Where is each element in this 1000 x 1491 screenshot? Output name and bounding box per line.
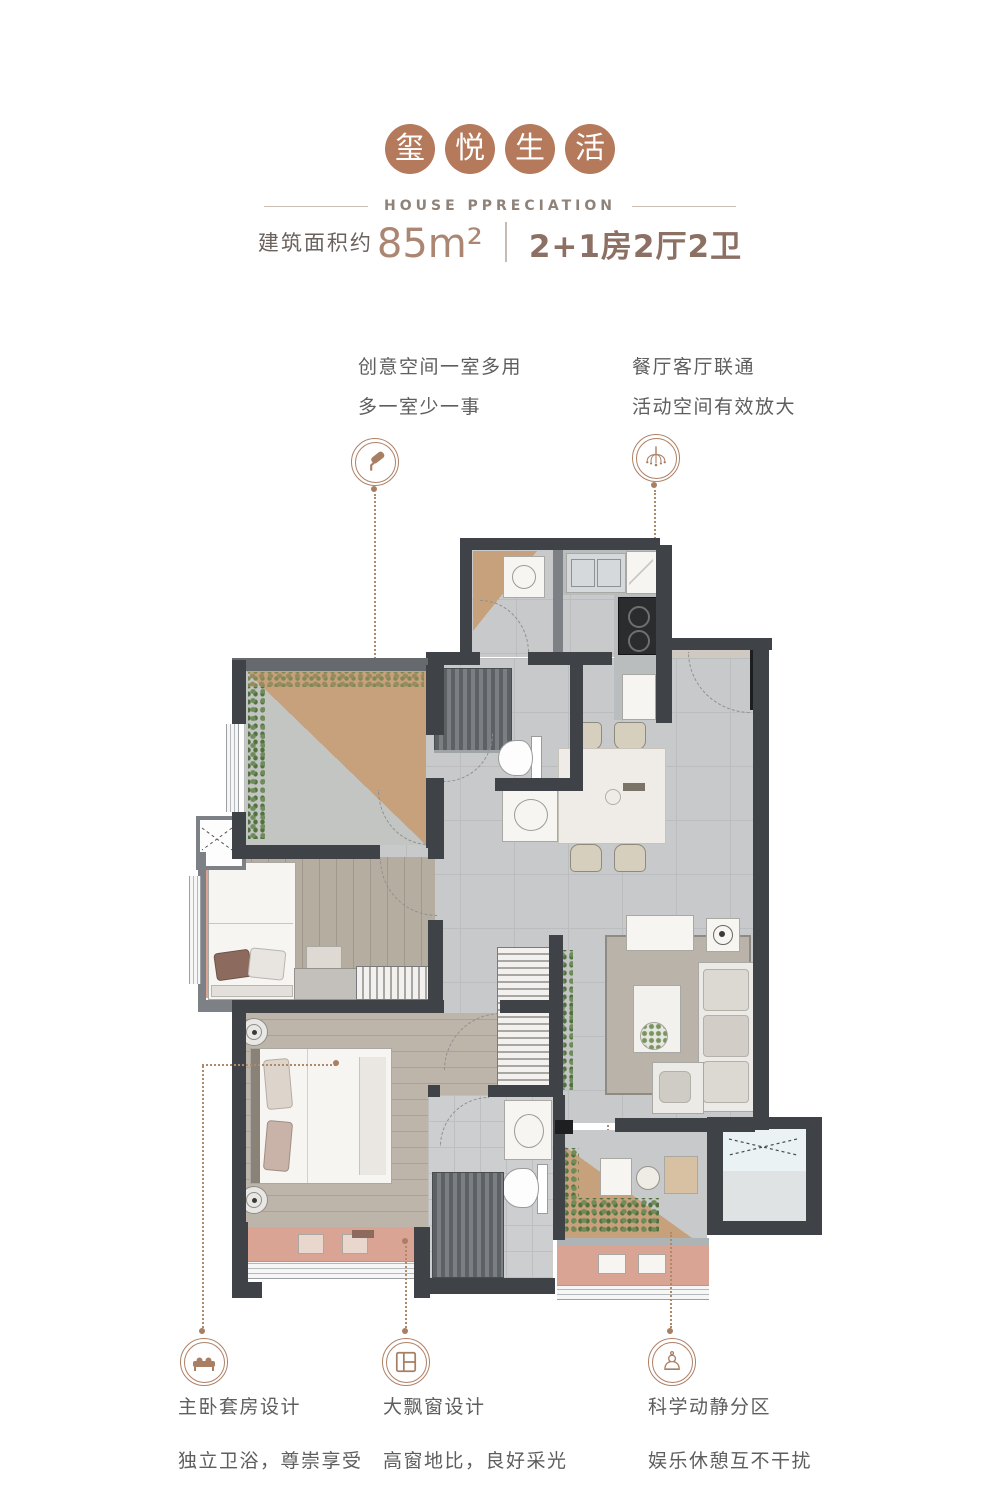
bedroom2-wardrobe — [356, 966, 436, 1000]
callout-flex-line1: 创意空间一室多用 — [358, 352, 522, 379]
chess-pawn-icon: ♙ — [648, 1338, 696, 1386]
seat-cushion — [598, 1254, 626, 1274]
window-glyph — [393, 1349, 419, 1375]
title-char: 悦 — [455, 134, 485, 164]
kitchen-cabinet — [622, 674, 656, 720]
callout-zoning-line2: 娱乐休憩互不干扰 — [648, 1446, 812, 1473]
title-char: 玺 — [395, 134, 425, 164]
washing-machine — [503, 556, 545, 598]
callout-flex-line2: 多一室少一事 — [358, 392, 481, 419]
callout-dining-line2: 活动空间有效放大 — [632, 392, 796, 419]
wall — [232, 660, 246, 724]
flex-room-plants-top — [248, 672, 424, 687]
lower-window-seat — [557, 1245, 709, 1285]
bed-glyph — [191, 1350, 217, 1374]
wall — [488, 1085, 553, 1097]
chess-pawn-glyph: ♙ — [660, 1349, 683, 1375]
fridge — [626, 551, 657, 594]
callout-dining-line1: 餐厅客厅联通 — [632, 352, 755, 379]
connector-line-bed-h — [202, 1064, 336, 1066]
dining-chair — [614, 722, 646, 750]
master-shower — [432, 1172, 504, 1278]
connector-dot — [199, 1328, 205, 1334]
wall — [428, 845, 444, 859]
window-icon — [382, 1338, 430, 1386]
master-bay-glass — [248, 1261, 414, 1279]
dining-chair — [614, 844, 646, 872]
wall — [615, 1118, 755, 1132]
title-char: 活 — [575, 134, 605, 164]
wall — [500, 1000, 550, 1013]
page-title: 玺 悦 生 活 — [0, 124, 1000, 174]
flex-window — [226, 724, 239, 812]
wall — [495, 778, 583, 791]
area-info: 建筑面积约 85m² 2+1房2厅2卫 — [0, 222, 1000, 264]
paint-roller-icon — [351, 438, 399, 486]
master-toilet — [502, 1164, 548, 1212]
balcony-table — [636, 1166, 660, 1190]
paint-roller-glyph — [362, 449, 388, 475]
balcony-chair — [664, 1156, 698, 1194]
wall — [426, 652, 480, 665]
connector-line-window — [405, 1246, 407, 1328]
wall — [672, 638, 772, 650]
decor-speaker — [706, 918, 740, 952]
bay-cushion — [298, 1234, 324, 1254]
wall — [232, 1000, 444, 1013]
wall — [707, 1123, 723, 1235]
subtitle: HOUSE PPRECIATION — [384, 198, 616, 214]
lower-window-glass — [557, 1285, 709, 1300]
wall — [460, 550, 472, 654]
flex-room-plants-left — [248, 687, 265, 839]
bedroom2-window — [189, 876, 201, 984]
connector-dot — [402, 1238, 408, 1244]
stove — [618, 597, 658, 655]
wall — [549, 935, 563, 1095]
connector-line-bed-v — [202, 1066, 204, 1328]
wall — [428, 1085, 440, 1097]
bed-icon — [180, 1338, 228, 1386]
dining-chair — [570, 844, 602, 872]
wall — [428, 920, 443, 1004]
divider-line — [264, 206, 368, 207]
connector-dot — [371, 486, 377, 492]
wall — [232, 1013, 246, 1227]
area-label: 建筑面积约 — [258, 227, 373, 264]
divider-line — [632, 206, 736, 207]
bay-decor — [352, 1230, 374, 1238]
connector-dot — [667, 1328, 673, 1334]
toilet — [498, 736, 542, 780]
wall — [426, 782, 444, 848]
title-char: 生 — [515, 134, 545, 164]
callout-window-line2: 高窗地比，良好采光 — [383, 1446, 568, 1473]
chandelier-glyph — [642, 444, 670, 472]
vanity-sink — [502, 786, 558, 842]
balcony-chair — [600, 1158, 632, 1196]
wall — [570, 665, 583, 785]
wall — [656, 545, 672, 723]
wall — [426, 665, 444, 735]
seat-cushion — [638, 1254, 666, 1274]
area-value: 85m² — [377, 224, 483, 264]
master-wardrobe — [497, 947, 551, 1087]
connector-dot — [651, 482, 657, 488]
wall — [528, 652, 612, 665]
unit-layout: 2+1房2厅2卫 — [529, 230, 742, 264]
callout-master-line1: 主卧套房设计 — [178, 1392, 301, 1419]
wall — [428, 1278, 555, 1294]
chandelier-icon — [632, 434, 680, 482]
wall — [426, 778, 444, 791]
connector-dot — [333, 1060, 339, 1066]
bedroom2-cabinet — [294, 968, 358, 1000]
floorplan-flyer: 玺 悦 生 活 HOUSE PPRECIATION 建筑面积约 85m² 2+1… — [0, 0, 1000, 1491]
connector-dot — [402, 1328, 408, 1334]
sofa-chaise — [652, 1062, 704, 1114]
wall — [232, 812, 246, 848]
wall — [232, 1282, 262, 1298]
title-char-badge: 玺 — [385, 124, 435, 174]
kitchen-sink — [566, 553, 626, 593]
balcony-plants — [559, 1198, 659, 1234]
tv-console — [626, 915, 694, 951]
callout-window-line1: 大飘窗设计 — [383, 1392, 486, 1419]
wall — [555, 1120, 573, 1134]
master-bed — [250, 1048, 392, 1184]
sofa — [698, 962, 756, 1112]
subtitle-row: HOUSE PPRECIATION — [0, 198, 1000, 214]
table-plant — [640, 1022, 668, 1050]
wall — [707, 1221, 822, 1235]
title-char-badge: 悦 — [445, 124, 495, 174]
title-char-badge: 生 — [505, 124, 555, 174]
wall — [232, 658, 428, 671]
wall — [232, 845, 380, 859]
wall — [753, 650, 769, 1130]
wall — [460, 538, 660, 550]
connector-line-zoning — [670, 1232, 672, 1328]
wall — [806, 1123, 822, 1235]
title-char-badge: 活 — [565, 124, 615, 174]
divider — [505, 222, 507, 262]
master-bay-window-seat — [248, 1227, 414, 1261]
callout-zoning-line1: 科学动静分区 — [648, 1392, 771, 1419]
wall — [553, 550, 563, 654]
ac-platform — [723, 1129, 806, 1221]
callout-master-line2: 独立卫浴，尊崇享受 — [178, 1446, 363, 1473]
wall — [553, 1095, 565, 1240]
master-vanity — [504, 1100, 552, 1160]
bedroom2-bed — [208, 862, 296, 1000]
